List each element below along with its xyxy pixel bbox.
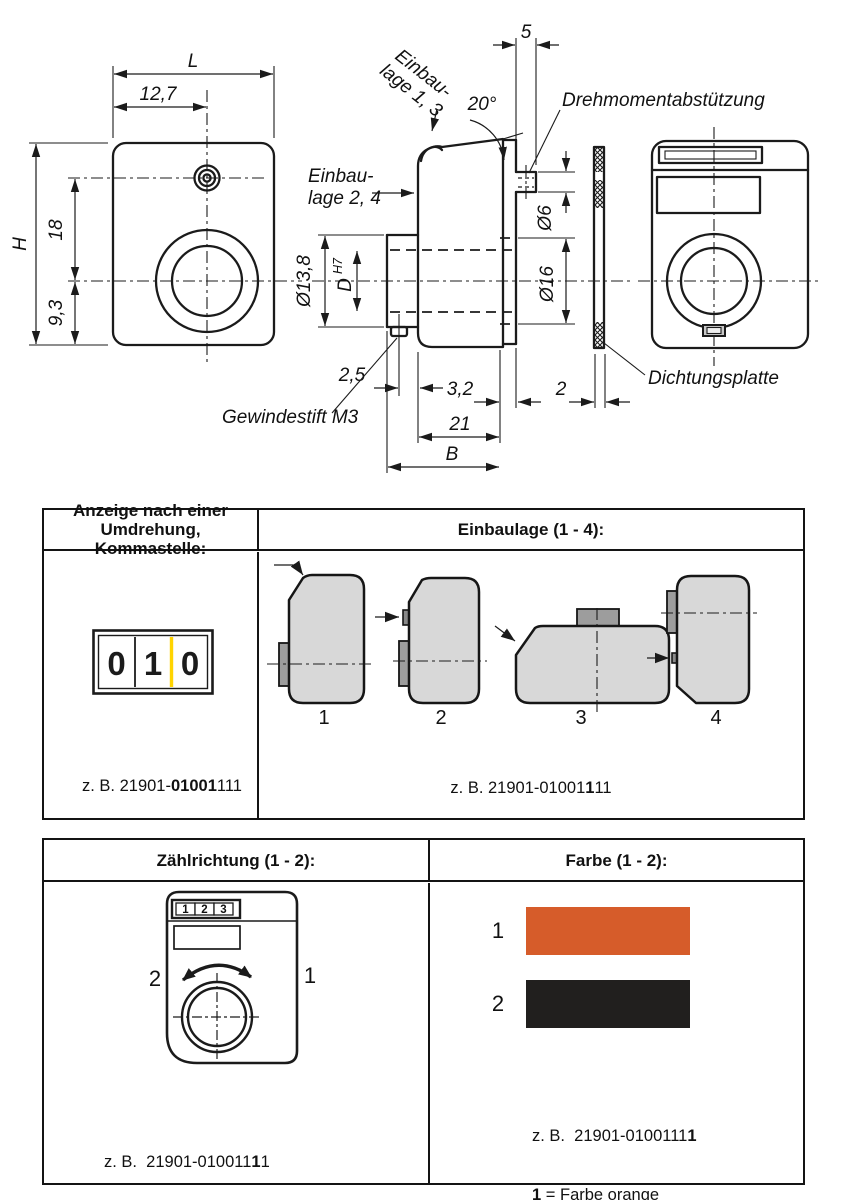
cell-farbe: 1 2 z. B. 21901-01001111 1 = Farbe orang… xyxy=(430,883,803,1183)
dim-dia6: Ø6 xyxy=(535,205,556,232)
svg-text:lage 2, 4: lage 2, 4 xyxy=(308,188,381,209)
mounting-position-1: 1 xyxy=(267,565,373,729)
header-anzeige: Anzeige nach einer Umdrehung, Kommastell… xyxy=(44,510,259,551)
counter-display: 0 1 0 xyxy=(92,629,214,695)
counter-digit-2: 1 xyxy=(144,645,162,682)
cell-zaehlrichtung: 1 2 3 2 1 z. B. 21901-01001111 1 = im Uh… xyxy=(44,883,430,1183)
rear-view xyxy=(638,127,822,366)
dim-L: L xyxy=(188,51,199,72)
position-4-number: 4 xyxy=(710,707,721,729)
dim-2: 2 xyxy=(555,379,567,400)
dim-9-3: 9,3 xyxy=(46,299,67,326)
header-anzeige-line1: Anzeige nach einer xyxy=(44,501,257,520)
side-view-dimensions: 5 20° Einbau- lage 1, 3 Einbau- lage 2, … xyxy=(222,22,765,473)
device-digit-3: 3 xyxy=(220,904,226,916)
dim-21: 21 xyxy=(448,414,470,435)
dim-angle-20: 20° xyxy=(467,94,497,115)
seal-plate-view: Dichtungsplatte xyxy=(594,147,779,389)
dim-12-7: 12,7 xyxy=(140,84,178,105)
header-farbe: Farbe (1 - 2): xyxy=(430,840,803,882)
position-2-number: 2 xyxy=(435,707,446,729)
direction-2-number: 2 xyxy=(149,966,161,991)
example-code: z. B. 21901-01001111 xyxy=(60,1153,376,1173)
device-digit-2: 2 xyxy=(201,904,207,916)
color-2-number: 2 xyxy=(478,980,518,1028)
example-code: z. B. 21901-01001111 xyxy=(532,1127,697,1147)
counter-digit-3: 0 xyxy=(181,645,199,682)
device-display: 1 2 3 xyxy=(172,900,240,918)
device-digit-1: 1 xyxy=(182,904,189,916)
color-swatch-orange xyxy=(526,907,690,955)
color-1-number: 1 xyxy=(478,907,518,955)
mounting-position-3: 3 xyxy=(495,608,669,729)
device-label-window xyxy=(174,926,240,949)
svg-text:Einbau-: Einbau- xyxy=(308,166,374,187)
front-view xyxy=(68,90,302,363)
mounting-position-2: 2 xyxy=(375,578,487,729)
label-dichtungsplatte: Dichtungsplatte xyxy=(648,368,779,389)
cell-anzeige: 0 1 0 z. B. 21901-01001111 0100 = 1mm St… xyxy=(44,552,259,818)
dim-bore-H7: H7 xyxy=(331,257,345,274)
dim-bore-D: D xyxy=(335,278,356,292)
display-slot xyxy=(659,147,762,163)
technical-drawing: L 12,7 H 18 9,3 xyxy=(0,0,846,500)
position-1-number: 1 xyxy=(318,707,329,729)
flange xyxy=(503,140,516,344)
label-drehmomentabstuetzung: Drehmomentabstützung xyxy=(562,90,765,111)
zaehlrichtung-code-block: z. B. 21901-01001111 1 = im Uhrzeigersin… xyxy=(60,1114,376,1200)
label-einbaulage-2-4: Einbau- lage 2, 4 xyxy=(308,166,381,209)
table-anzeige-einbaulage: Anzeige nach einer Umdrehung, Kommastell… xyxy=(42,508,805,820)
direction-device-drawing: 1 2 3 2 1 xyxy=(147,890,407,1070)
counter-digit-1: 0 xyxy=(107,645,125,682)
label-einbaulage-1-3: Einbau- lage 1, 3 xyxy=(376,44,460,122)
header-zaehlrichtung: Zählrichtung (1 - 2): xyxy=(44,840,430,882)
header-einbaulage: Einbaulage (1 - 4): xyxy=(259,510,803,551)
example-code: z. B. 21901-01001111 xyxy=(259,779,803,799)
example-code: z. B. 21901-01001111 xyxy=(47,777,242,797)
table-zaehlrichtung-farbe: Zählrichtung (1 - 2): Farbe (1 - 2): xyxy=(42,838,805,1185)
dim-5: 5 xyxy=(521,22,532,43)
dim-dia16: Ø16 xyxy=(537,266,558,303)
direction-1-number: 1 xyxy=(304,963,316,988)
farbe-code-block: z. B. 21901-01001111 1 = Farbe orange 2 … xyxy=(532,1088,697,1200)
code-legend-line: 1 = Farbe orange xyxy=(532,1186,697,1200)
dim-2-5: 2,5 xyxy=(338,365,366,386)
dim-dia13-8: Ø13,8 xyxy=(294,255,315,308)
cell-einbaulage: 1 2 3 xyxy=(259,552,803,818)
label-window xyxy=(657,177,760,213)
label-gewindestift-m3: Gewindestift M3 xyxy=(222,407,359,428)
dim-H: H xyxy=(10,237,31,251)
set-screw-rear xyxy=(703,325,725,336)
color-swatch-black xyxy=(526,980,690,1028)
catalog-drawing-page: L 12,7 H 18 9,3 xyxy=(0,0,846,1200)
dim-18: 18 xyxy=(46,219,67,241)
dim-3-2: 3,2 xyxy=(447,379,474,400)
dim-B: B xyxy=(446,444,459,465)
torque-support-pin xyxy=(516,165,536,199)
position-3-number: 3 xyxy=(575,707,586,729)
